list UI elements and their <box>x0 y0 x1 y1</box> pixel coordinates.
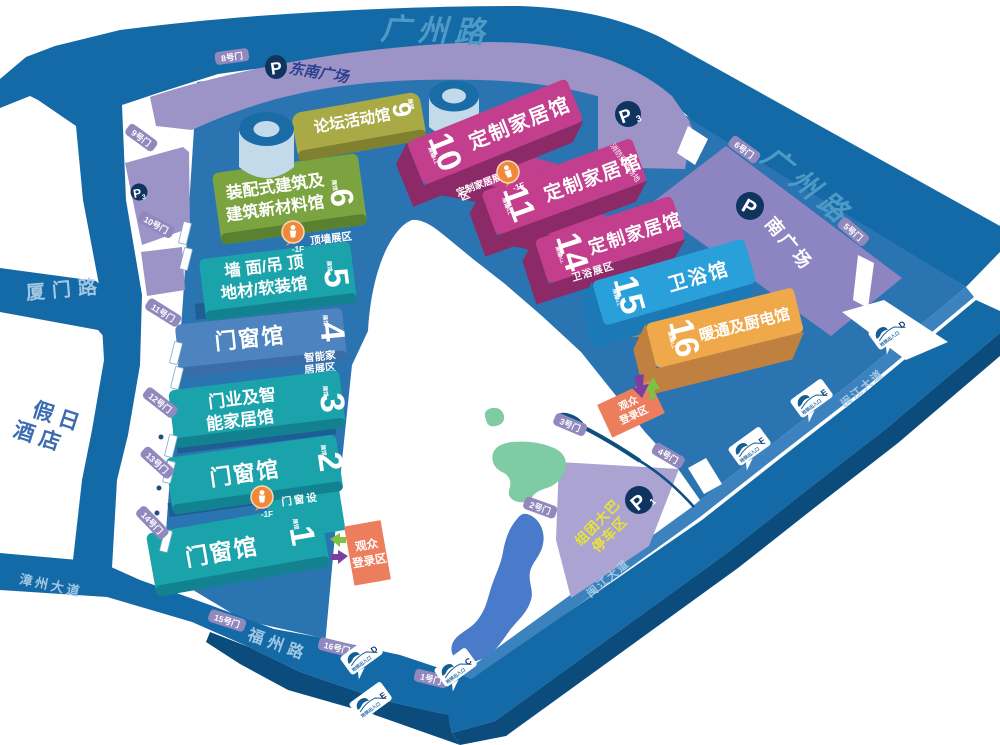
svg-text:广州路: 广州路 <box>380 13 492 50</box>
svg-text:-1F: -1F <box>261 510 273 519</box>
svg-text:-1F: -1F <box>292 245 304 254</box>
svg-text:4: 4 <box>312 320 352 343</box>
